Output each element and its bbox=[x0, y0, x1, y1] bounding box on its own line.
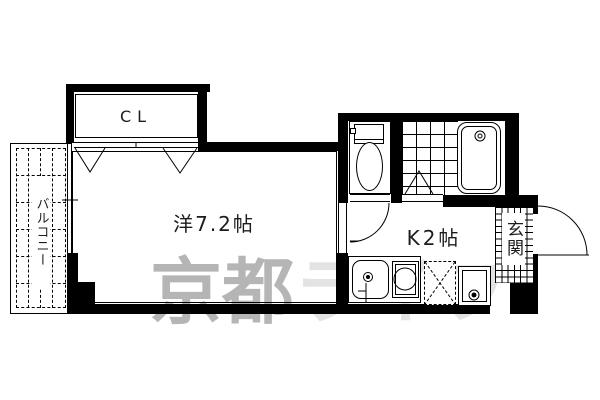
floorplan-canvas: 京都ライフ bbox=[0, 0, 600, 400]
closet-fold-door-mark bbox=[75, 148, 105, 172]
bathtub-drain bbox=[475, 131, 485, 141]
kitchen-label: K2帖 bbox=[392, 223, 476, 249]
washer-drain-dot bbox=[472, 293, 476, 297]
wc-door-swing-arc bbox=[350, 203, 389, 242]
sink-faucet-dot bbox=[367, 276, 370, 279]
entrance-label: 玄関 bbox=[502, 213, 525, 265]
main-room-label: 洋7.2帖 bbox=[144, 209, 284, 235]
bath-folding-door-mark bbox=[405, 171, 433, 194]
entrance-door-swing-arc bbox=[538, 206, 587, 255]
closet-label: CL bbox=[76, 95, 196, 137]
closet-fold-door-mark bbox=[163, 148, 197, 173]
plan-line-art bbox=[0, 0, 600, 400]
bathtub-drain-inner bbox=[478, 134, 482, 138]
stove-burner bbox=[394, 268, 416, 290]
balcony-label: バルコニー bbox=[32, 176, 50, 288]
